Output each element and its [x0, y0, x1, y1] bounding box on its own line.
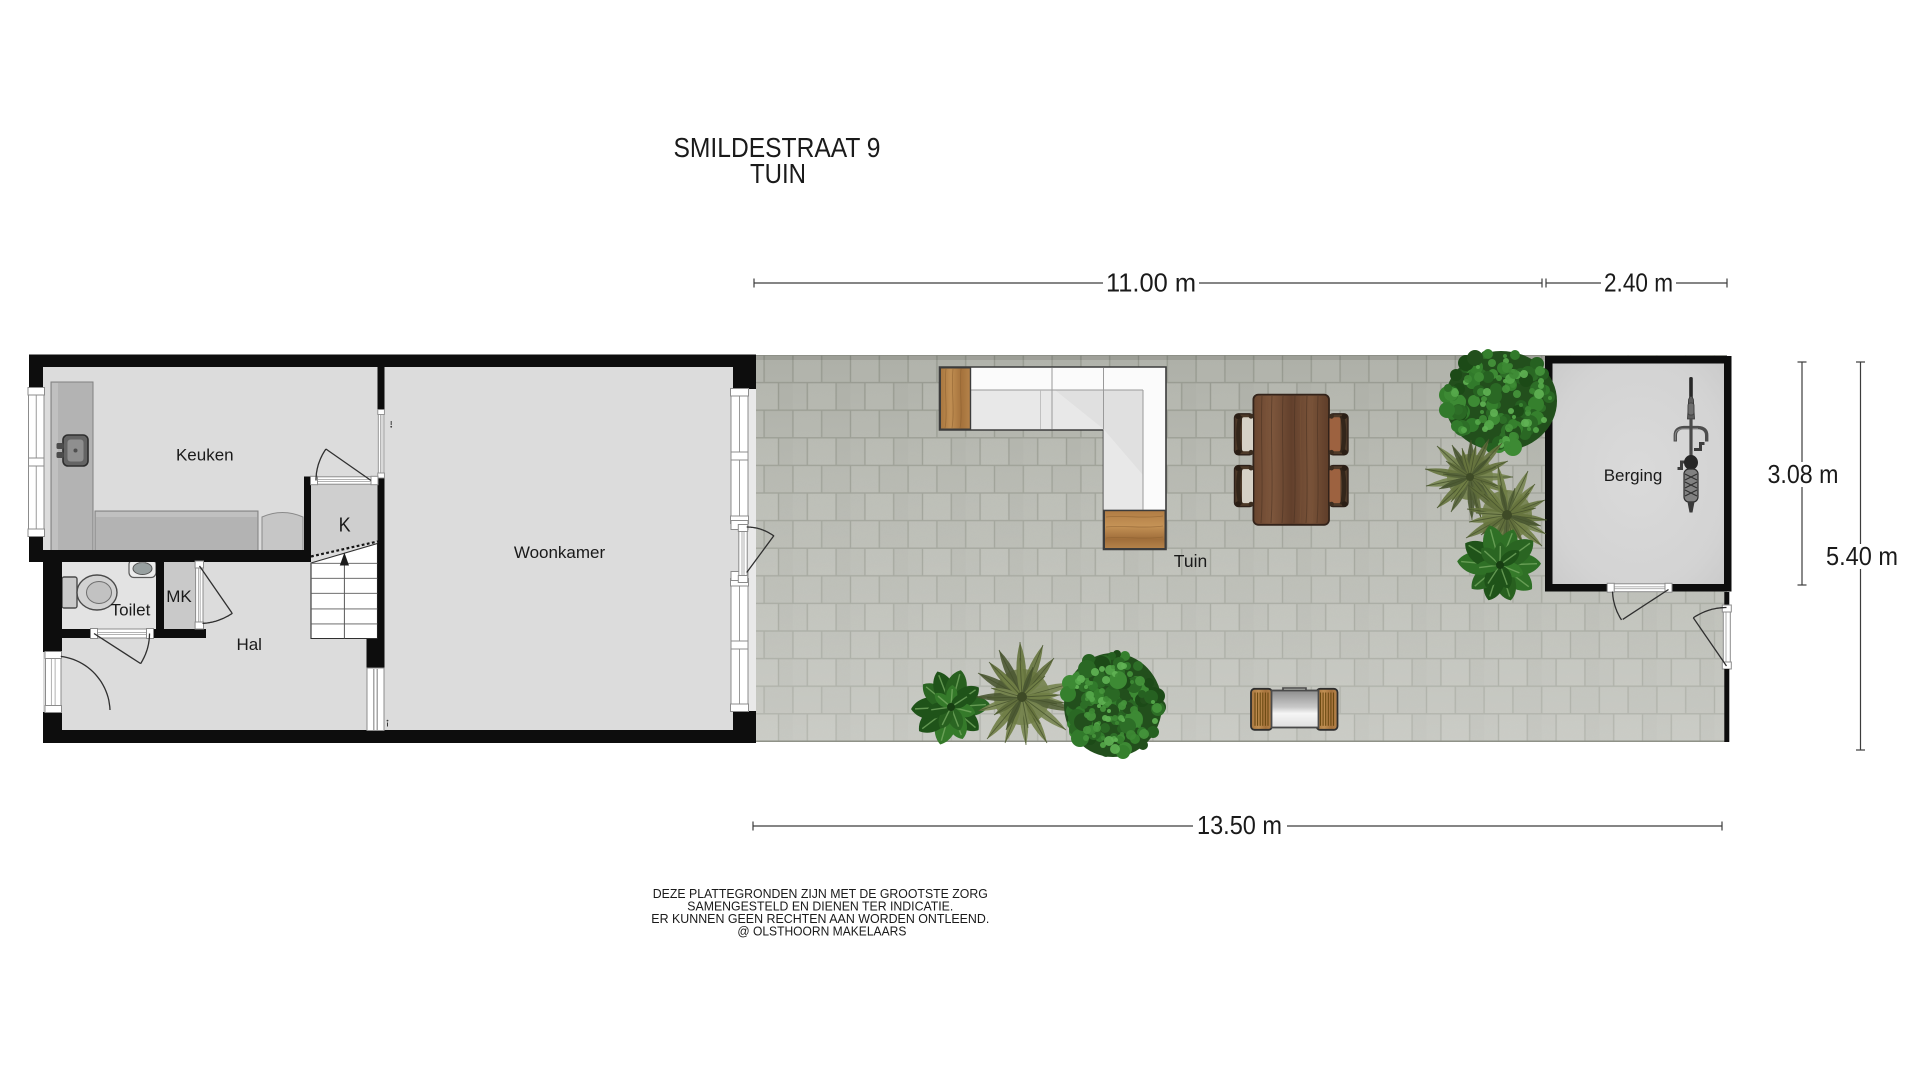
svg-text:@ OLSTHOORN MAKELAARS: @ OLSTHOORN MAKELAARS: [737, 924, 906, 939]
svg-text:3.08 m: 3.08 m: [1768, 459, 1839, 489]
svg-text:Hal: Hal: [236, 635, 262, 654]
svg-text:2.40 m: 2.40 m: [1604, 268, 1673, 298]
svg-text:Tuin: Tuin: [1174, 551, 1207, 571]
svg-text:5.40 m: 5.40 m: [1826, 541, 1898, 571]
svg-text:11.00 m: 11.00 m: [1106, 268, 1196, 298]
svg-text:K: K: [339, 515, 352, 537]
svg-text:Berging: Berging: [1604, 466, 1663, 485]
svg-text:Keuken: Keuken: [176, 446, 234, 465]
svg-text:Toilet: Toilet: [111, 601, 151, 620]
svg-text:Woonkamer: Woonkamer: [514, 543, 606, 562]
svg-text:TUIN: TUIN: [750, 158, 806, 189]
svg-text:13.50 m: 13.50 m: [1197, 810, 1282, 840]
svg-text:MK: MK: [166, 587, 192, 606]
